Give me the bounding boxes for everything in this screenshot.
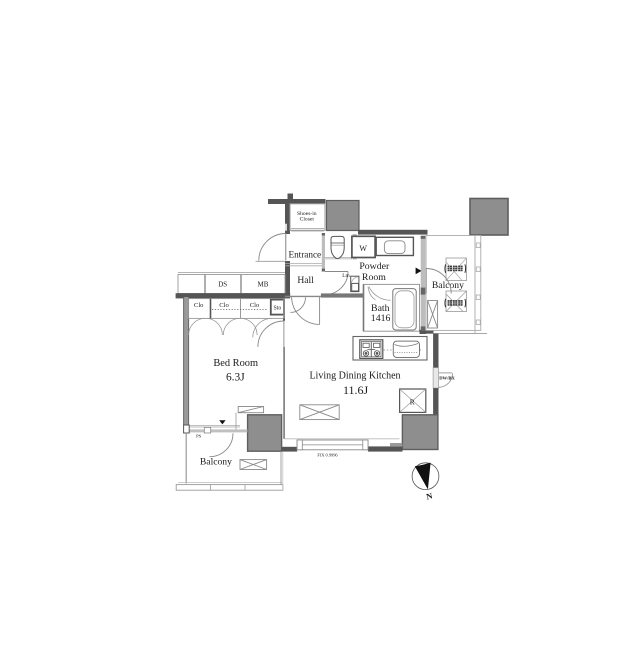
svg-text:11.6J: 11.6J — [343, 383, 369, 397]
svg-text:MB: MB — [258, 281, 269, 289]
svg-text:Bed Room: Bed Room — [213, 358, 258, 369]
svg-text:Clo: Clo — [194, 302, 204, 309]
svg-text:Powder: Powder — [359, 261, 390, 272]
svg-text:W: W — [359, 244, 367, 253]
svg-text:Clo: Clo — [250, 302, 260, 309]
svg-text:Clo: Clo — [219, 302, 229, 309]
svg-text:Lm: Lm — [342, 273, 350, 279]
svg-text:Entrance: Entrance — [288, 250, 321, 260]
svg-text:Balcony: Balcony — [200, 457, 232, 468]
svg-text:DW/BX: DW/BX — [439, 375, 455, 380]
svg-text:FIX 0.9996: FIX 0.9996 — [317, 452, 338, 457]
svg-text:Hall: Hall — [297, 275, 314, 286]
svg-text:Living Dining Kitchen: Living Dining Kitchen — [309, 371, 400, 382]
svg-text:Sto: Sto — [274, 306, 282, 312]
svg-text:Closet: Closet — [300, 217, 315, 223]
svg-text:1416: 1416 — [371, 313, 391, 324]
svg-text:R: R — [410, 397, 415, 406]
svg-text:6.3J: 6.3J — [226, 371, 245, 383]
svg-text:DS: DS — [218, 281, 227, 289]
svg-text:PS: PS — [196, 433, 202, 438]
svg-text:Room: Room — [362, 272, 386, 283]
